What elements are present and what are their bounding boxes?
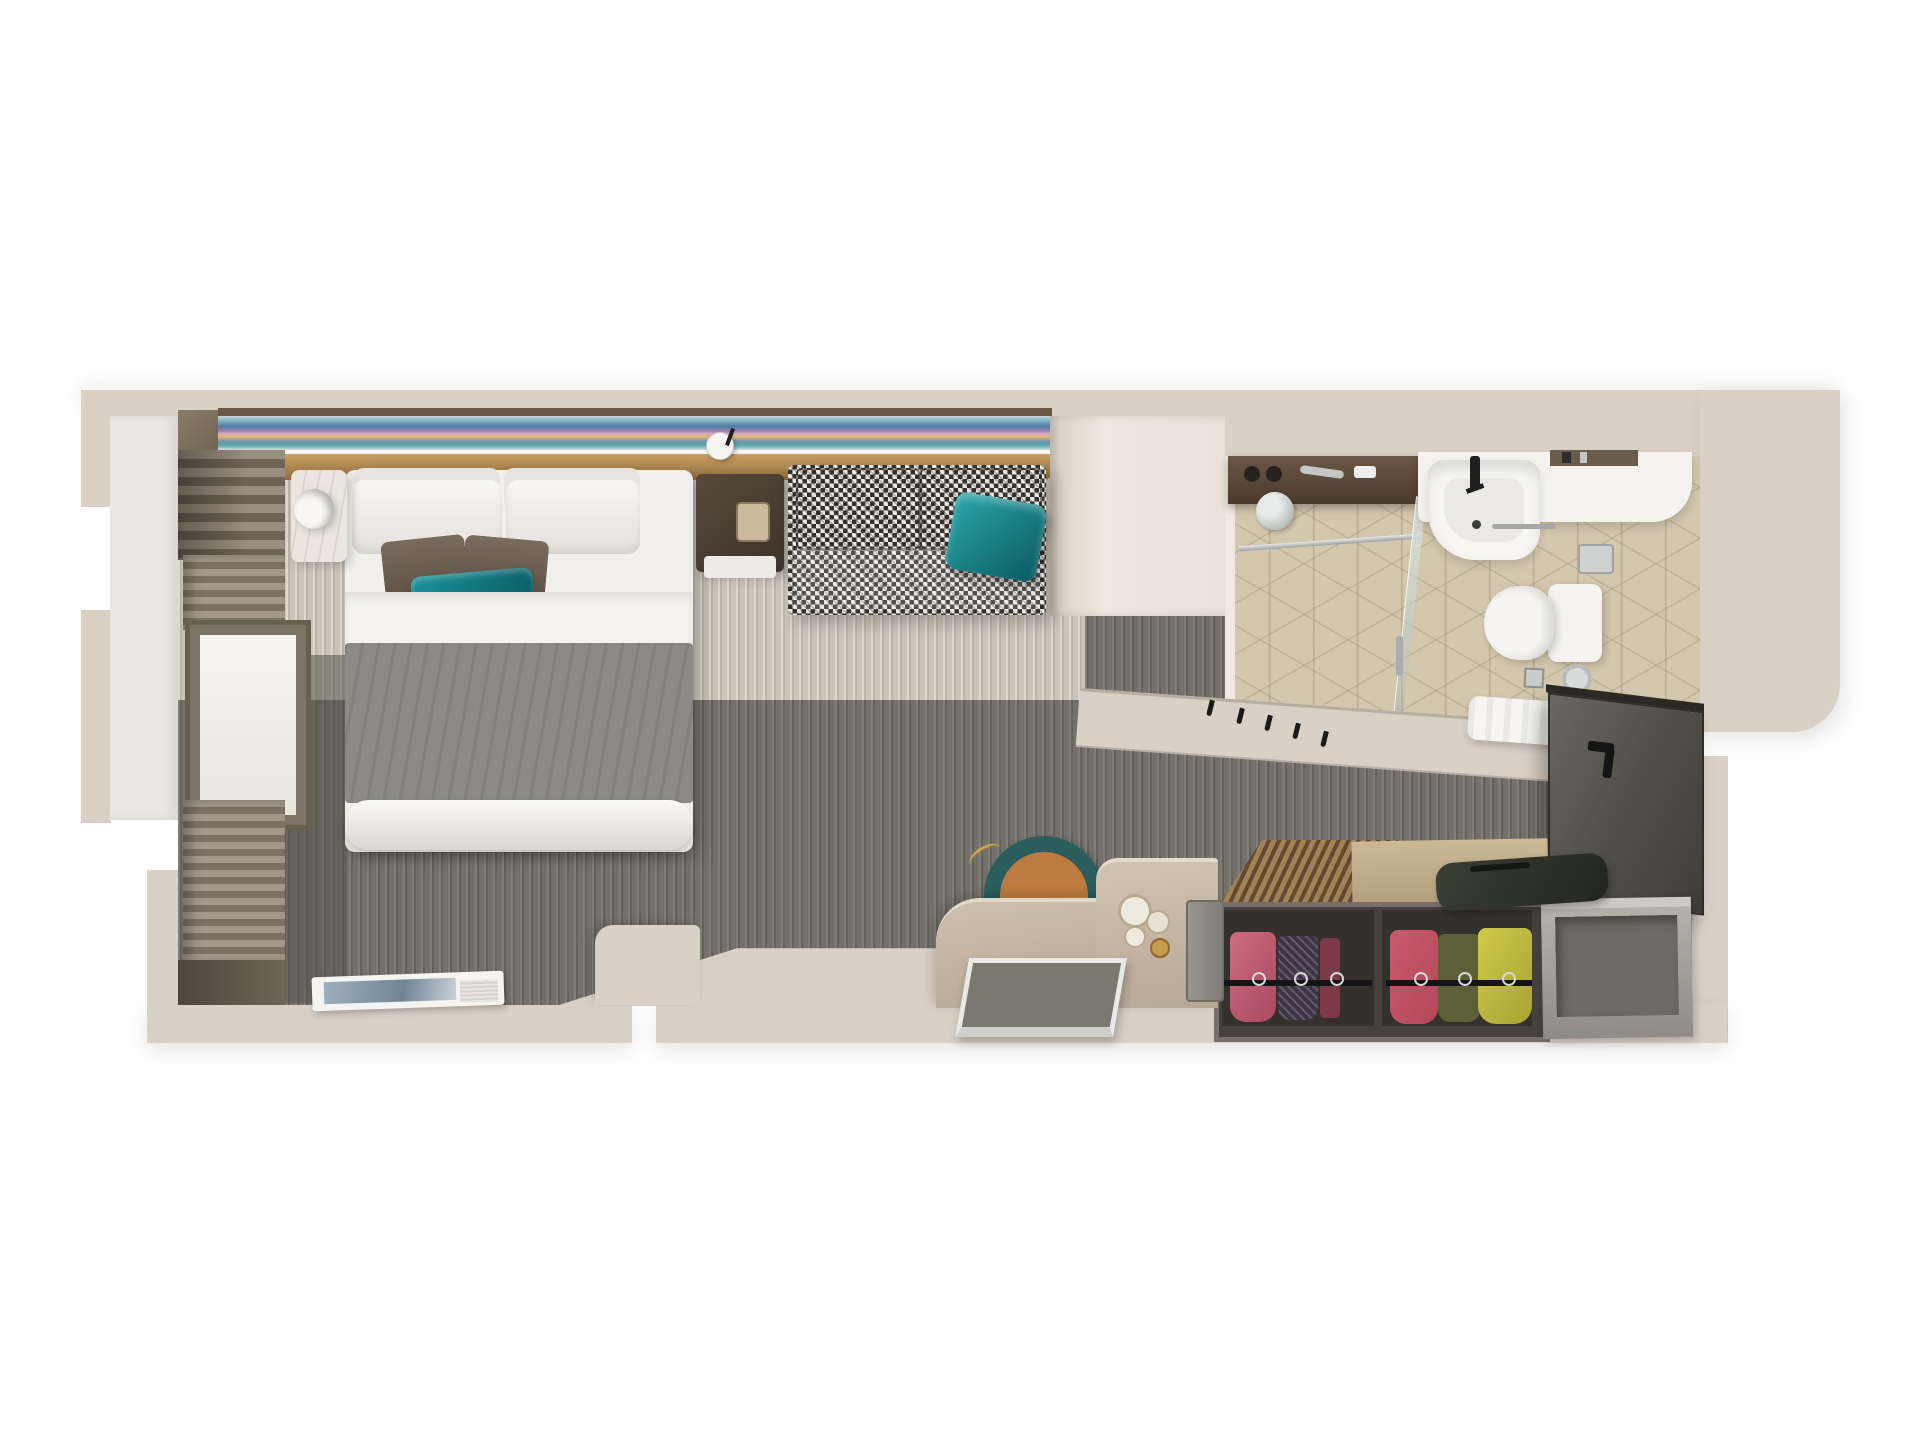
wall-mirror-amber [1150, 938, 1170, 958]
metal-tray [955, 958, 1127, 1037]
hanger-hook-3 [1330, 972, 1344, 986]
toiletry-soap [1354, 466, 1376, 478]
toiletry-bottle-2 [1266, 466, 1282, 482]
phone [736, 502, 770, 542]
wall-right-bathroom-block [1700, 390, 1840, 732]
wall-mirror-3 [1124, 926, 1146, 948]
window [190, 625, 306, 825]
bed-sheet-band [345, 592, 693, 646]
toilet-paper-holder [1578, 544, 1614, 574]
floor-book-pages [460, 979, 499, 1002]
window-wall-upper [178, 450, 285, 560]
stateroom-floorplan-render [0, 0, 1920, 1440]
divider-wall [1050, 416, 1225, 616]
hanger-hook-6 [1502, 972, 1516, 986]
toilet-bowl [1484, 586, 1554, 660]
wall-left-mid [81, 610, 111, 823]
wall-mirror-2 [1146, 910, 1170, 934]
bed-duvet [345, 643, 693, 803]
sofa-back-cushion-left [796, 468, 920, 550]
nightstand-shelf [704, 556, 776, 578]
art-headboard-strip [218, 416, 1052, 450]
floor-drain-square [1523, 667, 1544, 688]
curtain-bottom [183, 800, 285, 965]
hanger-hook-2 [1294, 972, 1308, 986]
round-lamp [294, 489, 334, 529]
bed-foot-roll [345, 800, 693, 850]
toiletry-bottle-1 [1244, 466, 1260, 482]
shower-head [1256, 492, 1294, 530]
hanger-hook-4 [1414, 972, 1428, 986]
storage-bench-interior [1555, 915, 1679, 1017]
floor-step [595, 925, 700, 1005]
teal-sofa-pillow [944, 491, 1048, 584]
wall-left-top [81, 390, 111, 507]
towel-rail [1492, 524, 1556, 529]
hanger-hook-5 [1458, 972, 1472, 986]
wall-left-low [147, 870, 178, 1003]
sink-drain [1472, 520, 1481, 529]
curtain-top [183, 555, 285, 630]
niche-item-dark [1562, 452, 1571, 463]
hanger-hook-1 [1252, 972, 1266, 986]
shower-door-handle [1396, 636, 1403, 676]
tablet-panel [1186, 900, 1224, 1002]
art-strip-trim [218, 408, 1052, 416]
balcony-strip [110, 416, 178, 820]
floor-book-cover-art [324, 978, 457, 1005]
toilet-tank [1548, 584, 1602, 662]
window-wall-base [178, 960, 285, 1005]
niche-item-chrome [1580, 452, 1587, 463]
wall-bottom-left [147, 1003, 632, 1043]
